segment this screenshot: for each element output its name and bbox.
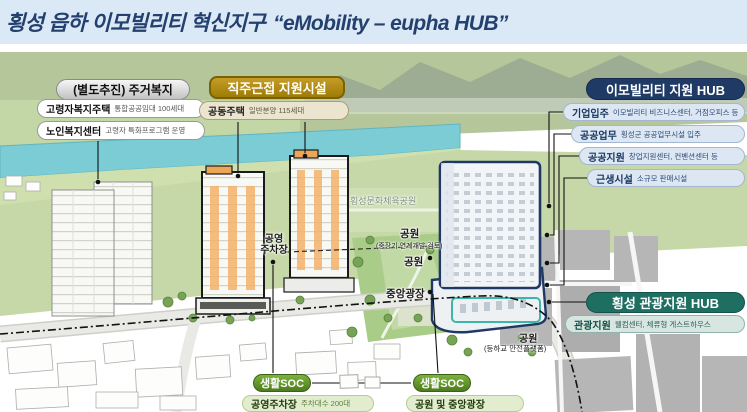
tourism-support-tag: 관광지원 웰컴센터, 체류형 게스트하우스	[565, 315, 745, 333]
apartment-tag: 공동주택 일반분양 115세대	[199, 101, 349, 120]
emobility-hub-building	[432, 162, 546, 332]
retail-facility-tag: 근생시설 소규모 판매시설	[587, 169, 745, 187]
public-support-tag: 공공지원 창업지원센터, 컨벤션센터 등	[579, 147, 745, 165]
page-title-english: “eMobility – eupha HUB”	[273, 12, 508, 35]
infographic-slide: 횡성 읍하 이모빌리티 혁신지구“eMobility – eupha HUB”	[0, 0, 747, 412]
page-title-korean: 횡성 읍하 이모빌리티 혁신지구	[6, 12, 265, 35]
map-public-parking-line1: 공영	[254, 234, 294, 245]
map-public-parking-line2: 주차장	[254, 245, 294, 256]
senior-center-desc: 고령자 특화프로그램 운영	[105, 125, 185, 136]
corporate-tenancy-label: 기업입주	[572, 105, 609, 120]
soc-parking-header: 생활SOC	[253, 374, 311, 392]
housing-welfare-header: (별도추진) 주거복지	[56, 79, 190, 100]
worklive-header: 직주근접 지원시설	[209, 76, 345, 99]
page-title: 횡성 읍하 이모빌리티 혁신지구“eMobility – eupha HUB”	[6, 7, 508, 37]
public-affairs-desc: 횡성군 공공업무시설 입주	[621, 129, 701, 140]
public-parking-label: 공영주차장	[251, 396, 297, 411]
senior-housing-desc: 통합공공임대 100세대	[114, 103, 184, 114]
senior-housing-tag: 고령자복지주택 통합공공임대 100세대	[37, 99, 205, 118]
tourism-support-desc: 웰컴센터, 체류형 게스트하우스	[615, 319, 711, 330]
corporate-tenancy-desc: 이모빌리티 비즈니스센터, 거점오피스 등	[613, 107, 739, 118]
apartment-desc: 일반분양 115세대	[249, 105, 304, 116]
map-public-parking-label: 공영 주차장	[254, 234, 294, 256]
senior-center-tag: 노인복지센터 고령자 특화프로그램 운영	[37, 121, 205, 140]
public-support-label: 공공지원	[588, 149, 625, 164]
sports-park-label: 횡성문화체육공원	[350, 194, 416, 207]
park-midterm-label: 공원	[400, 226, 419, 241]
senior-center-label: 노인복지센터	[46, 123, 101, 138]
park-center-label: 공원	[404, 254, 423, 269]
public-parking-tag: 공영주차장 주차대수 200대	[242, 395, 374, 412]
public-affairs-tag: 공공업무 횡성군 공공업무시설 입주	[571, 125, 745, 143]
retail-facility-desc: 소규모 판매시설	[637, 173, 687, 184]
park-midterm-sublabel: (중장기 연계개발 검토)	[376, 241, 443, 251]
tourism-support-label: 관광지원	[574, 317, 611, 332]
apartment-towers-left	[52, 182, 152, 316]
central-plaza-label: 중앙광장	[386, 286, 425, 301]
apartment-label: 공동주택	[208, 103, 245, 118]
park-plaza-label: 공원 및 중앙광장	[415, 396, 485, 411]
soc-park-header: 생활SOC	[413, 374, 471, 392]
public-parking-desc: 주차대수 200대	[301, 398, 350, 409]
apartment-tower-center-2	[284, 150, 354, 292]
retail-facility-label: 근생시설	[596, 171, 633, 186]
corporate-tenancy-tag: 기업입주 이모빌리티 비즈니스센터, 거점오피스 등	[563, 103, 745, 121]
park-safety-sublabel: (등하교 안전플랫폼)	[484, 343, 546, 354]
senior-housing-label: 고령자복지주택	[46, 101, 110, 116]
tourism-hub-header: 횡성 관광지원 HUB	[586, 292, 745, 313]
park-plaza-tag: 공원 및 중앙광장	[406, 395, 524, 412]
emobility-hub-header: 이모빌리티 지원 HUB	[586, 78, 745, 100]
public-support-desc: 창업지원센터, 컨벤션센터 등	[629, 151, 718, 162]
public-affairs-label: 공공업무	[580, 127, 617, 142]
